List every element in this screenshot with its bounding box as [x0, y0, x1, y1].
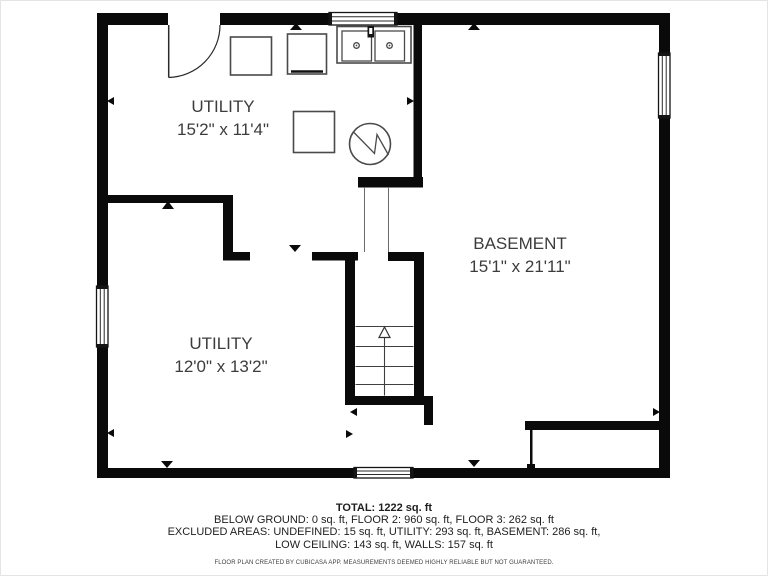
- floor-plan-page: UTILITY 15'2" x 11'4" BASEMENT 15'1" x 2…: [0, 0, 768, 576]
- wall-segment: [424, 396, 433, 425]
- room-dimensions: 15'2" x 11'4": [133, 119, 313, 142]
- wall-segment: [414, 252, 424, 404]
- window-icon: [659, 53, 671, 118]
- room-name: UTILITY: [131, 333, 311, 356]
- wall-segment: [220, 13, 329, 25]
- excluded-areas-text-2: LOW CEILING: 143 sq. ft, WALLS: 157 sq. …: [0, 539, 768, 551]
- wall-segment: [659, 13, 670, 53]
- wall-segment: [223, 252, 250, 261]
- wall-segment: [108, 195, 233, 203]
- wall-segment: [97, 347, 108, 478]
- window-icon: [354, 468, 413, 479]
- wall-segment: [525, 421, 659, 430]
- wall-segment: [358, 177, 423, 188]
- wall-segment: [414, 25, 423, 177]
- room-label-utility-lower: UTILITY 12'0" x 13'2": [131, 333, 311, 378]
- low-partition-line: [530, 430, 533, 468]
- double-sink-icon: [337, 26, 411, 63]
- area-summary: TOTAL: 1222 sq. ft BELOW GROUND: 0 sq. f…: [0, 502, 768, 569]
- room-label-basement: BASEMENT 15'1" x 21'11": [430, 233, 610, 278]
- wall-segment: [97, 468, 354, 478]
- wall-segment: [97, 13, 108, 286]
- disclaimer-text: FLOOR PLAN CREATED BY CUBICASA APP. MEAS…: [0, 557, 768, 569]
- wall-segment: [223, 195, 233, 260]
- stairs-up-icon: [356, 187, 414, 396]
- wall-segment: [527, 464, 535, 469]
- door-swing-icon: [169, 25, 220, 78]
- room-name: BASEMENT: [430, 233, 610, 256]
- wall-segment: [345, 252, 355, 404]
- room-dimensions: 12'0" x 13'2": [131, 356, 311, 379]
- room-dimensions: 15'1" x 21'11": [430, 256, 610, 279]
- room-label-utility-upper: UTILITY 15'2" x 11'4": [133, 96, 313, 141]
- wall-segment: [413, 468, 670, 478]
- window-icon: [329, 13, 397, 26]
- appliance-square-icon: [231, 37, 272, 75]
- floor-plan-drawing: [0, 0, 768, 576]
- total-area-text: TOTAL: 1222 sq. ft: [0, 502, 768, 514]
- wall-segment: [397, 13, 670, 25]
- stairs-direction-arrow: [379, 327, 390, 338]
- appliance-square-icon: [288, 34, 327, 74]
- excluded-areas-text: EXCLUDED AREAS: UNDEFINED: 15 sq. ft, UT…: [0, 526, 768, 538]
- floor-areas-text: BELOW GROUND: 0 sq. ft, FLOOR 2: 960 sq.…: [0, 514, 768, 526]
- water-heater-icon: [350, 124, 391, 165]
- wall-segment: [345, 396, 425, 405]
- room-name: UTILITY: [133, 96, 313, 119]
- wall-segment: [659, 118, 670, 478]
- window-icon: [97, 286, 109, 347]
